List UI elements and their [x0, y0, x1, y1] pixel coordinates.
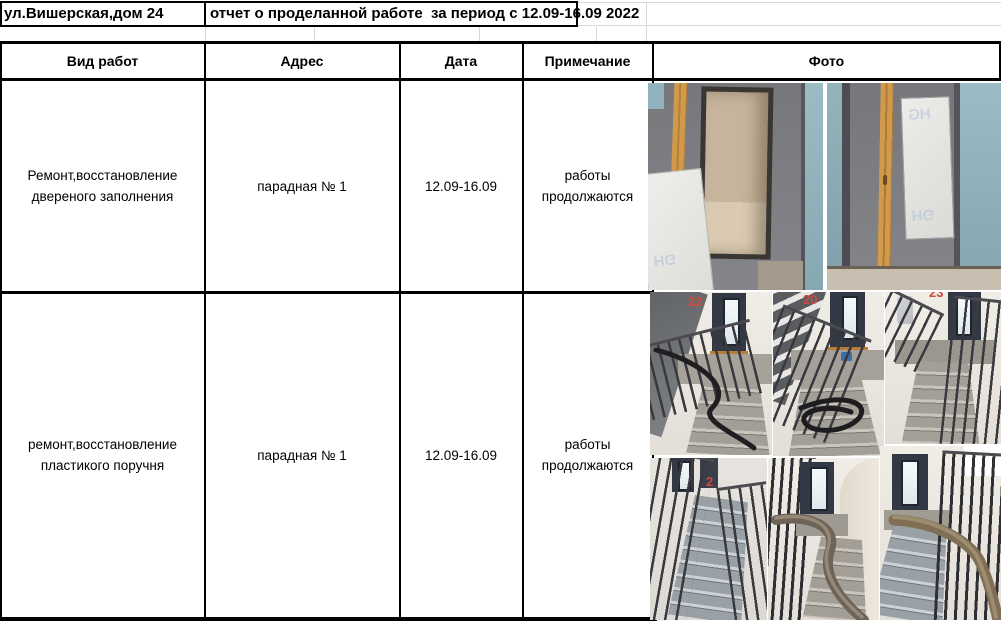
photo-stairs-3: 23 — [885, 292, 1001, 444]
door-frame-left — [842, 83, 850, 290]
cell-date-2: 12.09-16.09 — [401, 293, 521, 617]
photo-door-opening-1: HG — [648, 83, 823, 290]
gridline — [314, 27, 315, 41]
cell-date-1-text: 12.09-16.09 — [425, 176, 497, 197]
column-header-note: Примечание — [524, 44, 651, 78]
wood-plank — [877, 83, 893, 283]
removed-handrail-strip — [650, 292, 772, 455]
floor — [827, 269, 1001, 290]
bronze-handrail — [880, 446, 1001, 620]
gridline — [578, 2, 1001, 3]
gridline — [205, 27, 206, 41]
column-header-photo: Фото — [654, 44, 999, 78]
cell-note-2-line2: продолжаются — [542, 455, 633, 476]
cell-note-1-line2: продолжаются — [542, 186, 633, 207]
teal-wall-right — [960, 83, 1001, 290]
removed-handrail-strip — [773, 292, 884, 456]
cell-address-1: парадная № 1 — [206, 81, 398, 291]
work-report-sheet: ул.Вишерская,дом 24 отчет о проделанной … — [0, 0, 1001, 623]
cell-date-1: 12.09-16.09 — [401, 81, 521, 291]
teal-wall-corner — [648, 83, 664, 109]
door-opening — [699, 86, 774, 259]
title-border-left — [0, 1, 2, 27]
teal-wall-left — [827, 83, 842, 290]
column-header-work: Вид работ — [2, 44, 203, 78]
photo-stairs-5 — [768, 458, 879, 620]
teal-wall-right — [805, 83, 823, 290]
cell-work-1: Ремонт,восстановление двереного заполнен… — [2, 81, 203, 291]
gridline — [578, 25, 1001, 26]
gridline — [646, 2, 647, 41]
title-address: ул.Вишерская,дом 24 — [4, 5, 163, 22]
cell-work-2-line2: пластикого поручня — [41, 455, 164, 476]
cell-date-2-text: 12.09-16.09 — [425, 445, 497, 466]
column-header-date: Дата — [401, 44, 521, 78]
cell-note-1-line1: работы — [565, 165, 611, 186]
cell-work-2: ремонт,восстановление пластикого поручня — [2, 293, 203, 617]
floor-patch — [758, 261, 803, 290]
cell-address-1-text: парадная № 1 — [257, 176, 346, 197]
cell-note-2-line1: работы — [565, 434, 611, 455]
cell-note-2: работы продолжаются — [524, 293, 651, 617]
cell-work-1-line2: двереного заполнения — [32, 186, 174, 207]
plastic-handrail — [768, 458, 879, 620]
floor-number: 23 — [929, 292, 943, 300]
foam-marking-text: HG — [653, 250, 677, 269]
photo-stairs-6 — [880, 446, 1001, 620]
plank-hole — [883, 175, 887, 185]
foam-marking-text: HG — [908, 106, 931, 124]
cell-address-2-text: парадная № 1 — [257, 445, 346, 466]
title-border-bottom — [0, 25, 578, 27]
title-border-top — [0, 1, 578, 3]
photo-stairs-1: 22 — [650, 292, 772, 455]
photo-door-opening-2: HG HG — [827, 83, 1001, 290]
column-header-address: Адрес — [206, 44, 398, 78]
gridline — [596, 27, 597, 41]
cell-note-1: работы продолжаются — [524, 81, 651, 291]
gridline — [479, 27, 480, 41]
foam-marking-text: HG — [911, 206, 934, 224]
title-report: отчет о проделанной работе за период с 1… — [210, 5, 639, 22]
cell-work-2-line1: ремонт,восстановление — [28, 434, 177, 455]
cell-work-1-line1: Ремонт,восстановление — [28, 165, 178, 186]
photo-stairs-4: 2 — [650, 458, 767, 620]
foam-panel: HG HG — [901, 96, 955, 240]
cell-address-2: парадная № 1 — [206, 293, 398, 617]
title-divider — [204, 1, 206, 27]
table-border-bottom — [0, 617, 657, 621]
photo-stairs-2: 20 — [773, 292, 884, 456]
